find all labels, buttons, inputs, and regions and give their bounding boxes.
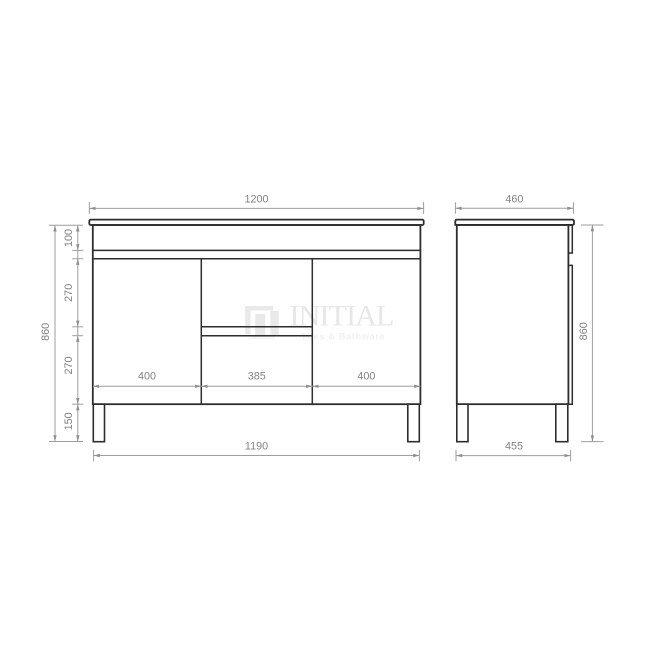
svg-text:460: 460 — [505, 194, 523, 206]
svg-text:385: 385 — [248, 371, 266, 383]
svg-text:Tiles & Bathware: Tiles & Bathware — [301, 332, 385, 342]
svg-text:400: 400 — [357, 371, 375, 383]
svg-text:455: 455 — [505, 441, 523, 453]
svg-text:860: 860 — [578, 322, 590, 340]
svg-text:1190: 1190 — [245, 440, 268, 452]
svg-text:860: 860 — [40, 323, 52, 341]
svg-text:270: 270 — [63, 356, 75, 374]
svg-text:270: 270 — [63, 284, 75, 302]
svg-text:1200: 1200 — [244, 194, 268, 206]
svg-text:INITIAL: INITIAL — [290, 300, 394, 333]
svg-text:100: 100 — [63, 229, 75, 247]
svg-text:150: 150 — [63, 412, 75, 430]
svg-text:400: 400 — [138, 371, 156, 383]
